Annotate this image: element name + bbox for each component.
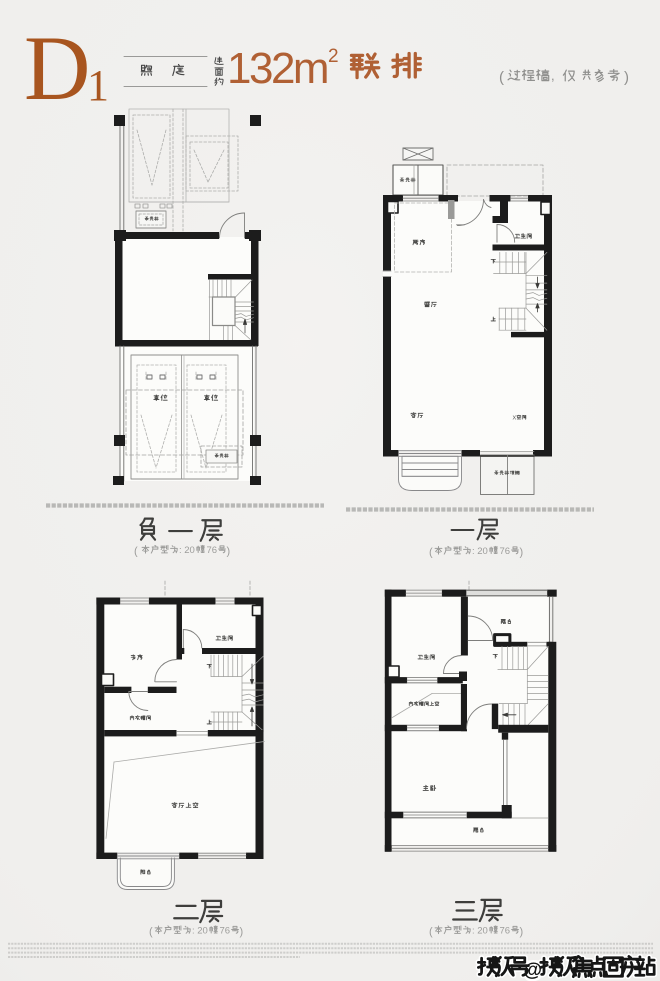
svg-text:): ) bbox=[520, 547, 524, 559]
svg-text:2: 2 bbox=[328, 46, 339, 67]
svg-text:: 20: : 20 bbox=[192, 926, 208, 937]
svg-text:76: 76 bbox=[207, 545, 218, 556]
svg-text:(: ( bbox=[149, 926, 153, 938]
svg-text:D: D bbox=[24, 17, 90, 119]
svg-text:): ) bbox=[624, 69, 629, 86]
svg-text:76: 76 bbox=[220, 926, 231, 937]
svg-text:: 20: : 20 bbox=[179, 545, 195, 556]
svg-text:1: 1 bbox=[87, 61, 109, 110]
svg-text:): ) bbox=[227, 546, 231, 558]
svg-text:(: ( bbox=[429, 547, 433, 559]
svg-text:(: ( bbox=[499, 69, 504, 86]
svg-text:: 20: : 20 bbox=[472, 926, 488, 937]
svg-text:,: , bbox=[551, 68, 555, 83]
svg-text:(: ( bbox=[429, 926, 433, 938]
svg-text:76: 76 bbox=[500, 926, 511, 937]
svg-text:): ) bbox=[520, 926, 524, 938]
svg-text:132m: 132m bbox=[227, 44, 327, 93]
svg-text:@: @ bbox=[524, 960, 543, 981]
svg-text:76: 76 bbox=[500, 546, 511, 557]
svg-text:(: ( bbox=[134, 546, 138, 558]
svg-text:X: X bbox=[513, 416, 517, 422]
svg-text:: 20: : 20 bbox=[472, 546, 488, 557]
svg-text:): ) bbox=[240, 926, 244, 938]
